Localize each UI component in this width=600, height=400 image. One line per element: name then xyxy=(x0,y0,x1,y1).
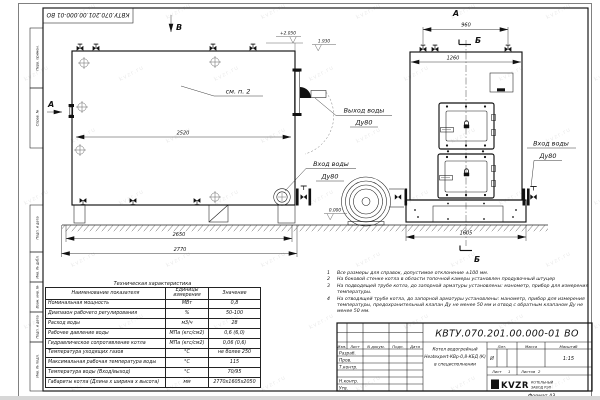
tb-col-izm: Изм. xyxy=(338,344,347,349)
tech-header-row: Наименование показателя Единицы измерени… xyxy=(46,288,261,300)
tech-h-value: Значение xyxy=(209,288,261,300)
tb-row-razrab: Разраб. xyxy=(339,350,356,356)
tech-cell: МВт xyxy=(166,299,209,309)
tech-cell: °С xyxy=(166,368,209,378)
tech-cell: Температура уходящих газов xyxy=(46,348,166,358)
tech-cell: мм xyxy=(166,377,209,387)
tb-designation: КВТУ.070.201.00.000-01 ВО xyxy=(435,329,579,340)
tech-cell: Габариты котла (Длина х ширина х высота) xyxy=(46,377,166,387)
tech-cell: Максимальная рабочая температура воды xyxy=(46,358,166,368)
tb-row-prov: Пров. xyxy=(339,357,352,363)
tech-cell: % xyxy=(166,309,209,319)
fan-blower xyxy=(342,177,405,226)
tech-row: Максимальная рабочая температура воды°С1… xyxy=(46,358,261,368)
tech-table: Наименование показателя Единицы измерени… xyxy=(45,287,261,388)
section-label-bottom: Б xyxy=(474,255,480,264)
side-view: 2520 2650 2770 В А xyxy=(47,15,392,257)
tech-cell: Гидравлическое сопротивление котла xyxy=(46,338,166,348)
title-block: КВТУ.070.201.00.000-01 ВО Изм. Лист N до… xyxy=(337,323,592,400)
elev-1930-text: 1.930 xyxy=(318,39,331,45)
base-bolts xyxy=(414,203,517,220)
note-text: На отводящей трубе котла, до запорной ар… xyxy=(337,297,589,316)
tb-name-line3: в специсполнении xyxy=(434,363,476,368)
tech-cell: °С xyxy=(166,358,209,368)
logo-icon xyxy=(491,380,499,390)
kvzr-logo: KVZR КОТЕЛЬНЫЙ ЗАВОД РЭП xyxy=(491,380,554,392)
tech-cell: не более 250 xyxy=(209,348,261,358)
elevation-0000: 0.000 xyxy=(324,208,347,220)
note-ref: см. п. 2 xyxy=(181,86,263,96)
view-label-A: А xyxy=(47,100,54,109)
tb-scale-header: Масштаб xyxy=(559,344,578,349)
tech-cell: м3/ч xyxy=(166,319,209,329)
margin-label: Подп. и дата xyxy=(36,216,40,239)
tech-cell: 115 xyxy=(209,358,261,368)
tb-col-podp: Подп. xyxy=(392,344,404,349)
tech-h-unit: Единицы измерения xyxy=(166,288,209,300)
tb-sheets-num: 2 xyxy=(538,369,541,374)
tech-cell: 2770х1605х2050 xyxy=(209,377,261,387)
inlet-side-line2: Ду80 xyxy=(321,173,339,181)
tech-cell: Рабочее давление воды xyxy=(46,328,166,338)
inlet-front-line2: Ду80 xyxy=(539,152,557,160)
supports xyxy=(74,205,295,223)
tb-mass-header: Масса xyxy=(525,344,538,349)
tb-lit-value: И xyxy=(490,356,494,362)
tech-h-name: Наименование показателя xyxy=(46,288,166,300)
tech-cell: 70/95 xyxy=(209,368,261,378)
logo-sub2: ЗАВОД РЭП xyxy=(531,386,552,390)
tech-row: Номинальная мощностьМВт0,8 xyxy=(46,299,261,309)
notes-list: 1 Все размеры для справок, допустимое от… xyxy=(327,271,589,316)
view-arrow-A: А xyxy=(47,100,62,112)
section-label-top: Б xyxy=(475,36,481,45)
dim-1605-text: 1605 xyxy=(460,231,473,237)
control-panel xyxy=(490,73,513,92)
note-item: 4 На отводящей трубе котла, до запорной … xyxy=(327,297,589,316)
elevation-1930: 1.930 xyxy=(312,39,336,51)
tech-cell: Номинальная мощность xyxy=(46,299,166,309)
section-mark-top: Б xyxy=(459,36,481,45)
dim-960: 960 xyxy=(423,23,508,45)
margin-label: Перв. примен. xyxy=(36,45,40,70)
dim-2520-text: 2520 xyxy=(177,131,190,137)
tech-cell: МПа (кгс/см2) xyxy=(166,338,209,348)
tb-sheet-label: Лист xyxy=(491,369,502,374)
tb-col-list: Лист xyxy=(349,344,360,349)
tb-sheet-num: 1 xyxy=(508,369,510,374)
tb-col-data: Дата xyxy=(409,344,421,349)
tech-table-block: Техническая характеристика Наименование … xyxy=(45,281,261,388)
tech-cell: 0,6 (6,0) xyxy=(209,328,261,338)
tb-scale-value: 1:15 xyxy=(563,356,574,362)
elevation-2050: +2.050 xyxy=(266,31,303,52)
drawing-sheet: kvzr.rukvzr.rukvzr.rukvzr.rukvzr.rukvzr.… xyxy=(0,0,600,400)
margin-label: Подп. и дата xyxy=(36,315,40,338)
left-wall-nozzle xyxy=(69,104,74,118)
tb-name-line1: Котел водогрейный xyxy=(432,347,477,353)
tb-row-nkontr: Н.контр. xyxy=(339,378,358,384)
inlet-label-front: Вход воды Ду80 xyxy=(527,140,576,188)
tech-cell: 28 xyxy=(209,319,261,329)
tech-cell: Расход воды xyxy=(46,319,166,329)
dim-2650-text: 2650 xyxy=(173,232,186,238)
inlet-valve-side xyxy=(296,186,311,206)
note-item: 3 На подводящей трубе котла, до запорной… xyxy=(327,284,589,297)
tech-row: Рабочее давление водыМПа (кгс/см2)0,6 (6… xyxy=(46,328,261,338)
dim-1260-text: 1260 xyxy=(447,56,460,62)
outlet-label-line1: Выход воды xyxy=(344,107,385,115)
see-note-text: см. п. 2 xyxy=(226,88,251,96)
tech-cell: МПа (кгс/см2) xyxy=(166,328,209,338)
margin-label: Инв. № дубл. xyxy=(36,255,40,278)
tb-sheets-label: Листов xyxy=(520,369,536,374)
margin-column: Перв. примен. Справ. № Подп. и дата Инв.… xyxy=(30,28,43,391)
margin-label: Справ. № xyxy=(36,109,40,126)
lower-door xyxy=(438,154,496,198)
tech-cell: Температура воды (Вход/выход) xyxy=(46,368,166,378)
note-number: 4 xyxy=(327,297,337,316)
tech-row: Расход водым3/ч28 xyxy=(46,319,261,329)
tech-cell: 50-100 xyxy=(209,309,261,319)
tech-row: Диапазон рабочего регулирования%50-100 xyxy=(46,309,261,319)
inlet-front-line1: Вход воды xyxy=(533,140,569,148)
dim-960-text: 960 xyxy=(461,23,471,29)
tech-row: Температура уходящих газов°Сне более 250 xyxy=(46,348,261,358)
note-number: 3 xyxy=(327,284,337,297)
logo-sub1: КОТЕЛЬНЫЙ xyxy=(531,380,554,385)
inlet-valve-front xyxy=(523,187,537,206)
tech-row: Габариты котла (Длина х ширина х высота)… xyxy=(46,377,261,387)
stamp-designation: КВТУ.070.201.00.000-01 ВО xyxy=(46,11,129,17)
tech-row: Гидравлическое сопротивление котлаМПа (к… xyxy=(46,338,261,348)
view-label-B: В xyxy=(176,23,182,32)
margin-label: Инв. № подл. xyxy=(36,354,40,377)
dim-2520: 2520 xyxy=(76,131,291,138)
roof-valves-front xyxy=(420,45,512,52)
section-mark-bottom: Б xyxy=(460,246,480,265)
drain-valves xyxy=(80,198,201,205)
tb-lit-header: Лит. xyxy=(497,344,507,349)
logo-text: KVZR xyxy=(501,381,529,391)
inlet-label-side: Вход воды Ду80 xyxy=(285,160,356,191)
inlet-side-line1: Вход воды xyxy=(313,160,349,168)
dim-2770-text: 2770 xyxy=(174,247,187,253)
tb-row-tkontr: Т.контр. xyxy=(339,364,358,370)
note-text: На подводящей трубе котла, до запорной а… xyxy=(337,284,589,297)
tb-name-line2: Heatexpert-КВр-0,8-КБД (К) xyxy=(424,354,486,360)
margin-label: Взам. инв. № xyxy=(36,285,40,308)
tech-cell: 0,06 (0,6) xyxy=(209,338,261,348)
view-label-A-front: А xyxy=(452,9,459,18)
tb-col-ndok: N докум. xyxy=(367,344,385,349)
tech-cell: °С xyxy=(166,348,209,358)
ground xyxy=(62,225,548,231)
outlet-label-line2: Ду80 xyxy=(355,119,373,127)
datum-marks xyxy=(74,56,221,203)
boiler-body-side xyxy=(72,51,295,205)
outlet-label: Выход воды Ду80 xyxy=(315,98,392,127)
tb-row-utv: Утв. xyxy=(339,385,348,391)
base-inner xyxy=(433,206,503,222)
roof-valves xyxy=(77,44,257,51)
upper-door xyxy=(439,103,496,149)
page-edge-shadow xyxy=(0,396,600,400)
top-stamp: КВТУ.070.201.00.000-01 ВО xyxy=(43,8,133,23)
pump-flange xyxy=(274,189,291,206)
duct-valve-left xyxy=(395,189,407,206)
elev-0000-text: 0.000 xyxy=(329,208,342,214)
view-arrow-B: В xyxy=(171,15,182,32)
tech-row: Температура воды (Вход/выход)°С70/95 xyxy=(46,368,261,378)
outlet-pipe xyxy=(293,69,334,155)
tech-cell: Диапазон рабочего регулирования xyxy=(46,309,166,319)
elev-2050-text: +2.050 xyxy=(280,31,296,37)
mid-bolts xyxy=(447,150,484,152)
tech-cell: 0,8 xyxy=(209,299,261,309)
